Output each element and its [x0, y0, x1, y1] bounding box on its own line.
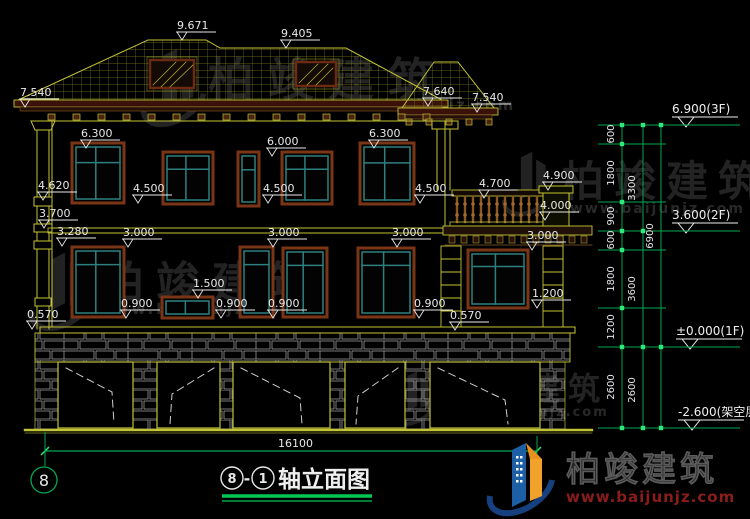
dim-label: 0.900 — [413, 297, 453, 318]
chain-dim-text: 600 — [606, 230, 617, 249]
window-outer-frame — [360, 143, 414, 204]
dim-label-text: 4.500 — [263, 182, 295, 195]
chain-dim-text: 2600 — [606, 374, 617, 399]
rafter-tail — [406, 119, 412, 125]
chain-tick — [620, 426, 624, 430]
rafter-tail — [373, 114, 380, 120]
chain-tick — [659, 426, 663, 430]
dim-label-arrow — [177, 32, 187, 40]
watermark-brand: 柏竣建筑 — [562, 157, 750, 206]
dim-label-text: 4.700 — [479, 177, 511, 190]
dim-label-arrow — [57, 238, 67, 246]
chain-tick — [641, 426, 645, 430]
dim-label-text: 3.000 — [268, 226, 300, 239]
rafter-tail — [73, 114, 80, 120]
chain-tick — [641, 123, 645, 127]
dim-label-text: 7.540 — [472, 91, 504, 104]
level-markers: 6.900(3F)3.600(2F)±0.000(1F)-2.600(架空层) — [672, 102, 750, 430]
rafter-tail — [248, 114, 255, 120]
rafter-tail — [298, 114, 305, 120]
dim-label-text: 9.671 — [177, 19, 209, 32]
title-axis-end: 1 — [258, 472, 267, 487]
dim-label-arrow — [532, 300, 542, 308]
window-outer-frame — [358, 248, 414, 317]
level-marker: -2.600(架空层) — [678, 405, 750, 430]
level-marker-text: 3.600(2F) — [672, 208, 730, 222]
dim-label-arrow — [392, 239, 402, 247]
dim-label-text: 4.000 — [540, 199, 572, 212]
garage-openings — [58, 362, 540, 428]
drawing-title: 8 - 1 轴立面图 — [221, 466, 372, 501]
dim-label: 1.200 — [531, 287, 571, 308]
window — [468, 250, 528, 308]
dim-label-text: 1.200 — [532, 287, 564, 300]
dim-label-text: 4.500 — [415, 182, 447, 195]
overall-width-dimension: 16100 — [41, 432, 541, 470]
logo-building-orange — [530, 452, 542, 501]
baluster-bulge — [511, 213, 515, 217]
main-eaves — [14, 100, 448, 111]
dim-label-arrow — [415, 195, 425, 203]
chain-tick — [620, 248, 624, 252]
dim-label-text: 4.900 — [543, 169, 575, 182]
baluster-bulge — [527, 202, 531, 206]
baluster-bulge — [511, 202, 515, 206]
floor-band — [48, 228, 448, 233]
baluster-bulge — [455, 202, 459, 206]
roof-vent — [147, 57, 197, 91]
dim-label: 4.500 — [414, 182, 454, 203]
window-outer-frame — [72, 247, 124, 317]
dim-label-text: 0.900 — [268, 297, 300, 310]
baluster-bulge — [495, 202, 499, 206]
window-outer-frame — [238, 152, 259, 206]
chain-dim-text: 900 — [606, 206, 617, 225]
title-text: 轴立面图 — [278, 466, 370, 493]
baluster-bulge — [463, 213, 467, 217]
dim-label-text: 1.500 — [193, 277, 225, 290]
logo-roof-orange — [526, 443, 542, 459]
dim-label: 3.000 — [122, 226, 162, 247]
rafter-tail — [123, 114, 130, 120]
dim-label-arrow — [263, 195, 273, 203]
window — [162, 297, 213, 318]
dentil — [509, 236, 515, 243]
baluster-bulge — [503, 202, 507, 206]
main-roof — [18, 40, 442, 100]
chain-tick — [620, 123, 624, 127]
level-marker: 6.900(3F) — [672, 102, 738, 127]
baluster-bulge — [519, 202, 523, 206]
rafter-tail — [466, 119, 472, 125]
chain-tick — [620, 345, 624, 349]
chain-tick — [641, 345, 645, 349]
chain-dim-text: 3300 — [627, 175, 638, 200]
cad-elevation-screenshot: 柏竣建筑 www.baijunjz.com 柏竣建筑 www.baijunjz.… — [0, 0, 750, 519]
dim-label-text: 7.640 — [423, 85, 455, 98]
dim-label-text: 7.540 — [20, 86, 52, 99]
roof-vent — [293, 59, 339, 89]
elevation-drawing: 柏竣建筑 www.baijunjz.com 柏竣建筑 www.baijunjz.… — [0, 0, 750, 519]
brand-logo: 柏竣建筑 www.baijunjz.com — [490, 443, 736, 513]
rafter-tail — [198, 114, 205, 120]
dentil — [449, 236, 455, 243]
dim-label-text: 9.405 — [281, 27, 313, 40]
dim-label-arrow — [267, 148, 277, 156]
baluster-bulge — [527, 213, 531, 217]
axis-bubble-label: 8 — [39, 471, 49, 490]
dim-label-arrow — [450, 322, 460, 330]
chain-tick — [659, 345, 663, 349]
window — [72, 247, 124, 317]
chain-tick — [620, 200, 624, 204]
chain-dim-text: 6900 — [645, 223, 656, 248]
dim-label-text: 3.700 — [39, 207, 71, 220]
dim-label-text: 4.500 — [133, 182, 165, 195]
dim-label-text: 6.300 — [369, 127, 401, 140]
title-separator: - — [244, 469, 251, 488]
window-outer-frame — [282, 152, 332, 204]
dentil — [461, 236, 467, 243]
downspout-pipe — [31, 121, 55, 329]
chain-dim-text: 600 — [606, 124, 617, 143]
axis-bubble-8: 8 — [31, 467, 57, 493]
chain-dim-text: 2600 — [627, 377, 638, 402]
baluster-bulge — [487, 213, 491, 217]
dentil — [485, 236, 491, 243]
dentils — [449, 236, 587, 243]
dim-label-text: 3.000 — [123, 226, 155, 239]
rafter-tails — [48, 114, 492, 125]
balusters — [455, 197, 539, 222]
dim-label-text: 0.570 — [450, 309, 482, 322]
baluster-bulge — [455, 213, 459, 217]
logo-url-text: www.baijunjz.com — [566, 488, 735, 506]
ledge-band — [40, 327, 575, 333]
chain-dim-text: 1800 — [606, 160, 617, 185]
window-outer-frame — [468, 250, 528, 308]
window-outer-frame — [162, 297, 213, 318]
balcony-rail-top — [452, 190, 546, 196]
rafter-tail — [223, 114, 230, 120]
baluster-bulge — [471, 202, 475, 206]
dim-label-arrow — [281, 40, 291, 48]
chain-tick — [620, 142, 624, 146]
dim-label-text: 3.000 — [392, 226, 424, 239]
dim-label-arrow — [133, 195, 143, 203]
level-marker: ±0.000(1F) — [676, 324, 744, 349]
dim-label-text: 0.900 — [121, 297, 153, 310]
dim-label-text: 0.900 — [414, 297, 446, 310]
rafter-tail — [426, 119, 432, 125]
baluster-bulge — [535, 202, 539, 206]
window — [238, 152, 259, 206]
logo-brand-text: 柏竣建筑 — [566, 450, 718, 490]
baluster-bulge — [471, 213, 475, 217]
dim-label-text: 6.300 — [81, 127, 113, 140]
level-marker-text: ±0.000(1F) — [676, 324, 744, 338]
dim-label-text: 3.000 — [527, 229, 559, 242]
dim-label: 9.405 — [280, 27, 320, 48]
stone-band — [35, 333, 570, 362]
rafter-tail — [348, 114, 355, 120]
baluster-bulge — [535, 213, 539, 217]
dim-label-text: 6.000 — [267, 135, 299, 148]
title-axis-start: 8 — [227, 472, 236, 487]
dentil — [497, 236, 503, 243]
baluster-bulge — [463, 202, 467, 206]
baluster-bulge — [479, 202, 483, 206]
level-marker-text: 6.900(3F) — [672, 102, 730, 116]
window — [72, 143, 124, 203]
dim-label-text: 4.620 — [38, 179, 70, 192]
window — [358, 248, 414, 317]
baluster-bulge — [487, 202, 491, 206]
rafter-tail — [486, 119, 492, 125]
chain-dim-text: 1200 — [606, 314, 617, 339]
rafter-tail — [173, 114, 180, 120]
window — [360, 143, 414, 204]
baluster-bulge — [479, 213, 483, 217]
chain-tick — [659, 123, 663, 127]
balcony-slab — [443, 226, 592, 235]
rafter-tail — [398, 114, 405, 120]
window-outer-frame — [72, 143, 124, 203]
dim-label-text: 3.280 — [57, 225, 89, 238]
rafter-tail — [273, 114, 280, 120]
level-marker-text: -2.600(架空层) — [678, 405, 750, 419]
baluster-bulge — [519, 213, 523, 217]
logo-building-blue — [512, 443, 526, 507]
baluster-bulge — [503, 213, 507, 217]
rafter-tail — [48, 114, 55, 120]
chain-dim-text: 3600 — [627, 276, 638, 301]
dim-label: 9.671 — [176, 19, 216, 40]
level-marker: 3.600(2F) — [672, 208, 738, 233]
chain-tick — [620, 306, 624, 310]
window — [163, 152, 213, 204]
chain-dim-text: 1800 — [606, 266, 617, 291]
rafter-tail — [323, 114, 330, 120]
chain-tick — [620, 229, 624, 233]
dim-label-text: 0.900 — [216, 297, 248, 310]
dim-label: 3.000 — [391, 226, 431, 247]
window-outer-frame — [163, 152, 213, 204]
dim-label: 3.000 — [267, 226, 307, 247]
baluster-bulge — [495, 213, 499, 217]
rafter-tail — [148, 114, 155, 120]
rafter-tail — [98, 114, 105, 120]
overall-width-label: 16100 — [278, 437, 313, 450]
dentil — [569, 236, 575, 243]
dim-label-text: 0.570 — [27, 308, 59, 321]
window — [282, 152, 332, 204]
dentil — [473, 236, 479, 243]
rafter-tail — [446, 119, 452, 125]
dentil — [581, 236, 587, 243]
dim-label-arrow — [38, 192, 48, 200]
wing-eaves — [398, 108, 498, 119]
